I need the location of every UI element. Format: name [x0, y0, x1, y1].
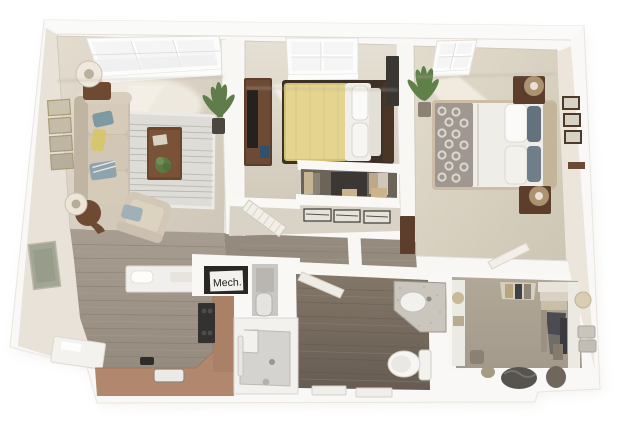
svg-text:Mech.: Mech.	[213, 276, 242, 289]
